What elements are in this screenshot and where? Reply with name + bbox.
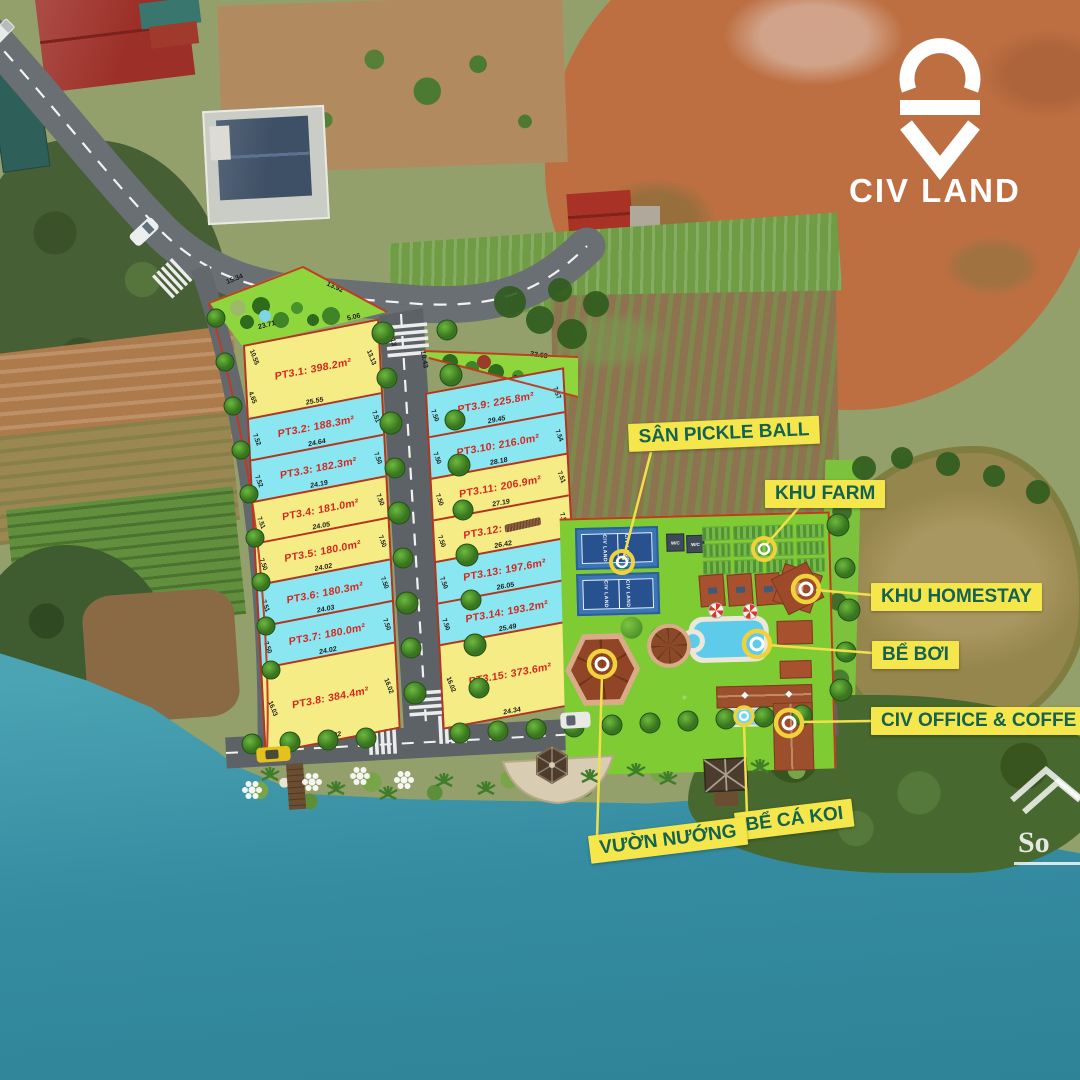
civland-logo-text: CIV LAND [849,172,1049,210]
callout-pool: BỂ BƠI [872,641,959,669]
labels-layer: SÂN PICKLE BALL KHU FARM KHU HOMESTAY BỂ… [0,0,1080,1080]
callout-koi: BỂ CÁ KOI [734,799,855,841]
site-masterplan: 15.34 13.92 23.71 5.06 13.13 32.68 30.72… [0,0,1080,1080]
callout-office: CIV OFFICE & COFFE [871,707,1080,735]
callout-bbq: VƯỜN NƯỚNG [588,817,748,864]
watermark-text: So [1018,826,1050,860]
callout-homestay: KHU HOMESTAY [871,583,1042,611]
callout-pickleball: SÂN PICKLE BALL [628,416,820,452]
callout-farm: KHU FARM [765,480,885,508]
